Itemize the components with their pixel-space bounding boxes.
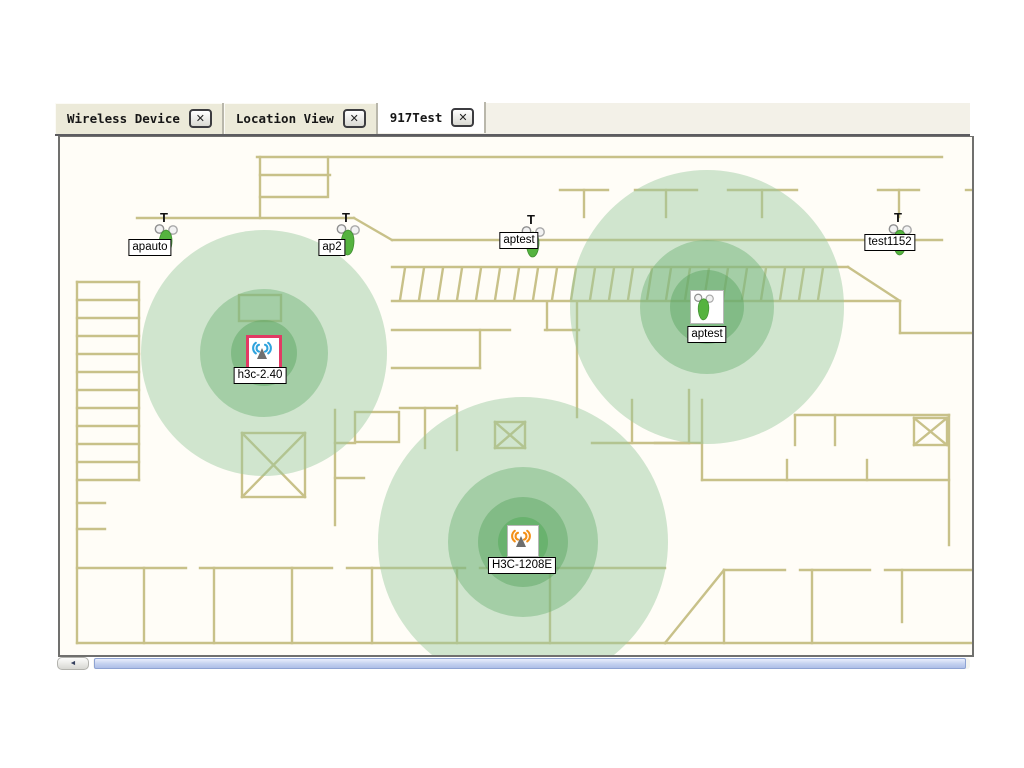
ap-label: test1152 [864, 234, 915, 251]
ap-label: apauto [128, 239, 171, 256]
antenna-t-mark: T [894, 210, 902, 225]
location-view-map: TapautoTap2TaptestTtest1152h3c-2.40aptes… [58, 136, 974, 657]
horizontal-scrollbar: ◄ [57, 657, 970, 670]
radio-wave-icon [508, 526, 534, 550]
scroll-left-button[interactable]: ◄ [57, 657, 89, 670]
ap-label: aptest [499, 232, 538, 249]
ap-label: H3C-1208E [488, 557, 556, 574]
tab-label: 917Test [390, 110, 443, 125]
tab-label: Location View [236, 111, 334, 126]
ap-icon [690, 290, 724, 324]
ap-label: h3c-2.40 [234, 367, 287, 384]
tab-close-icon[interactable]: ✕ [451, 108, 474, 127]
radio-wave-icon [249, 338, 275, 362]
tab-label: Wireless Device [67, 111, 180, 126]
tab-wireless-device[interactable]: Wireless Device✕ [55, 103, 224, 134]
ap-icon [507, 525, 539, 557]
tab-917test[interactable]: 917Test✕ [378, 102, 487, 133]
tab-close-icon[interactable]: ✕ [189, 109, 212, 128]
antenna-t-mark: T [342, 210, 350, 225]
ap-label: ap2 [318, 239, 345, 256]
tab-bar: Wireless Device✕Location View✕917Test✕ [55, 103, 970, 136]
ap-label: aptest [687, 326, 726, 343]
scrollbar-thumb[interactable] [94, 658, 966, 669]
tab-location-view[interactable]: Location View✕ [224, 103, 378, 134]
scrollbar-track[interactable] [93, 658, 970, 669]
ap-icon [246, 335, 282, 371]
antenna-t-mark: T [527, 212, 535, 227]
tab-close-icon[interactable]: ✕ [343, 109, 366, 128]
floorplan [60, 137, 972, 655]
ap-tower-icon [691, 291, 717, 322]
antenna-t-mark: T [160, 210, 168, 225]
application-window: Wireless Device✕Location View✕917Test✕ T… [0, 0, 1024, 768]
